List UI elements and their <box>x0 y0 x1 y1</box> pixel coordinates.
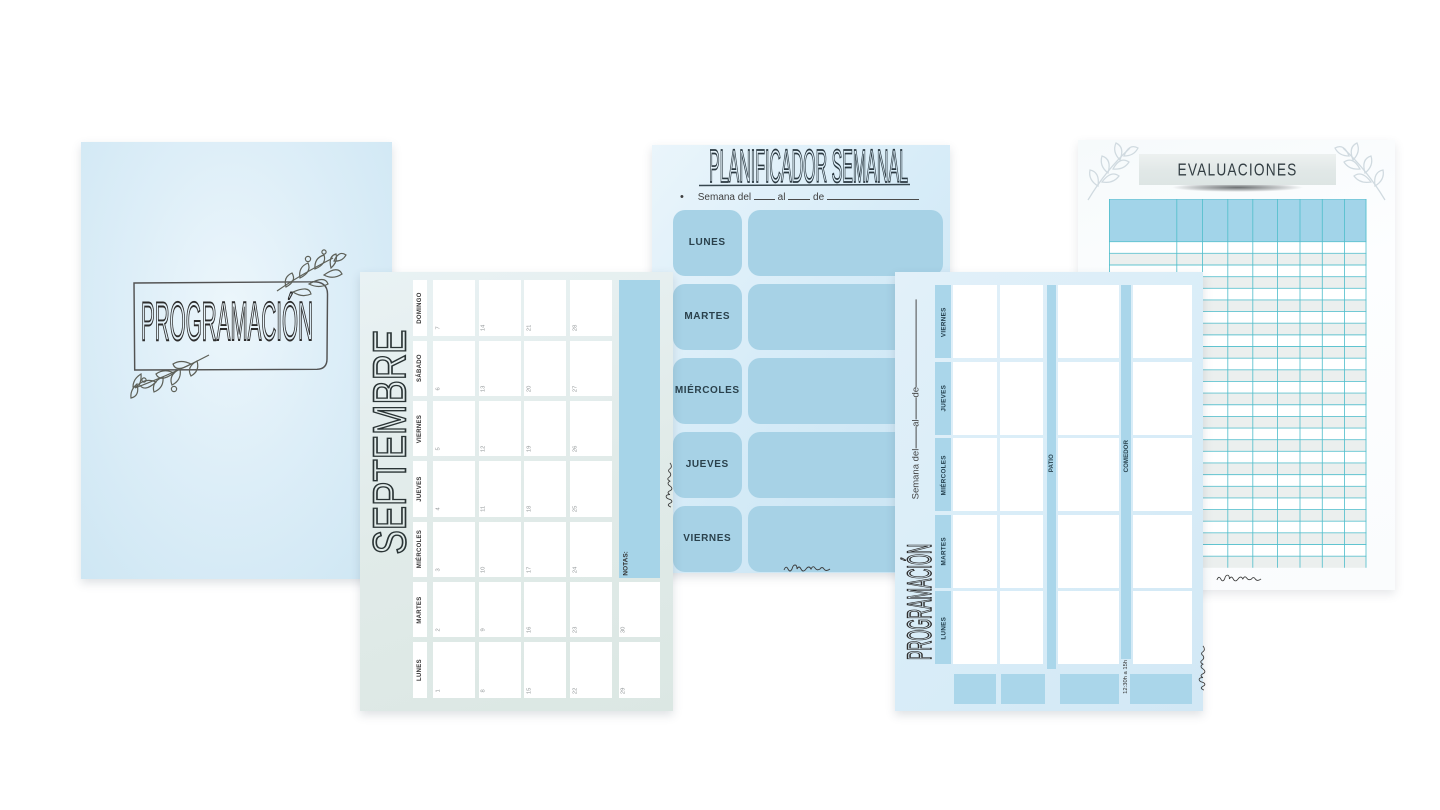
svg-text:SEPTEMBRE: SEPTEMBRE <box>363 330 415 555</box>
svg-text:PROGRAMACIÓN: PROGRAMACIÓN <box>141 290 313 352</box>
svg-text:PROGRAMACIÓN: PROGRAMACIÓN <box>901 544 939 660</box>
svg-text:EVALUACIONES: EVALUACIONES <box>1178 159 1298 179</box>
